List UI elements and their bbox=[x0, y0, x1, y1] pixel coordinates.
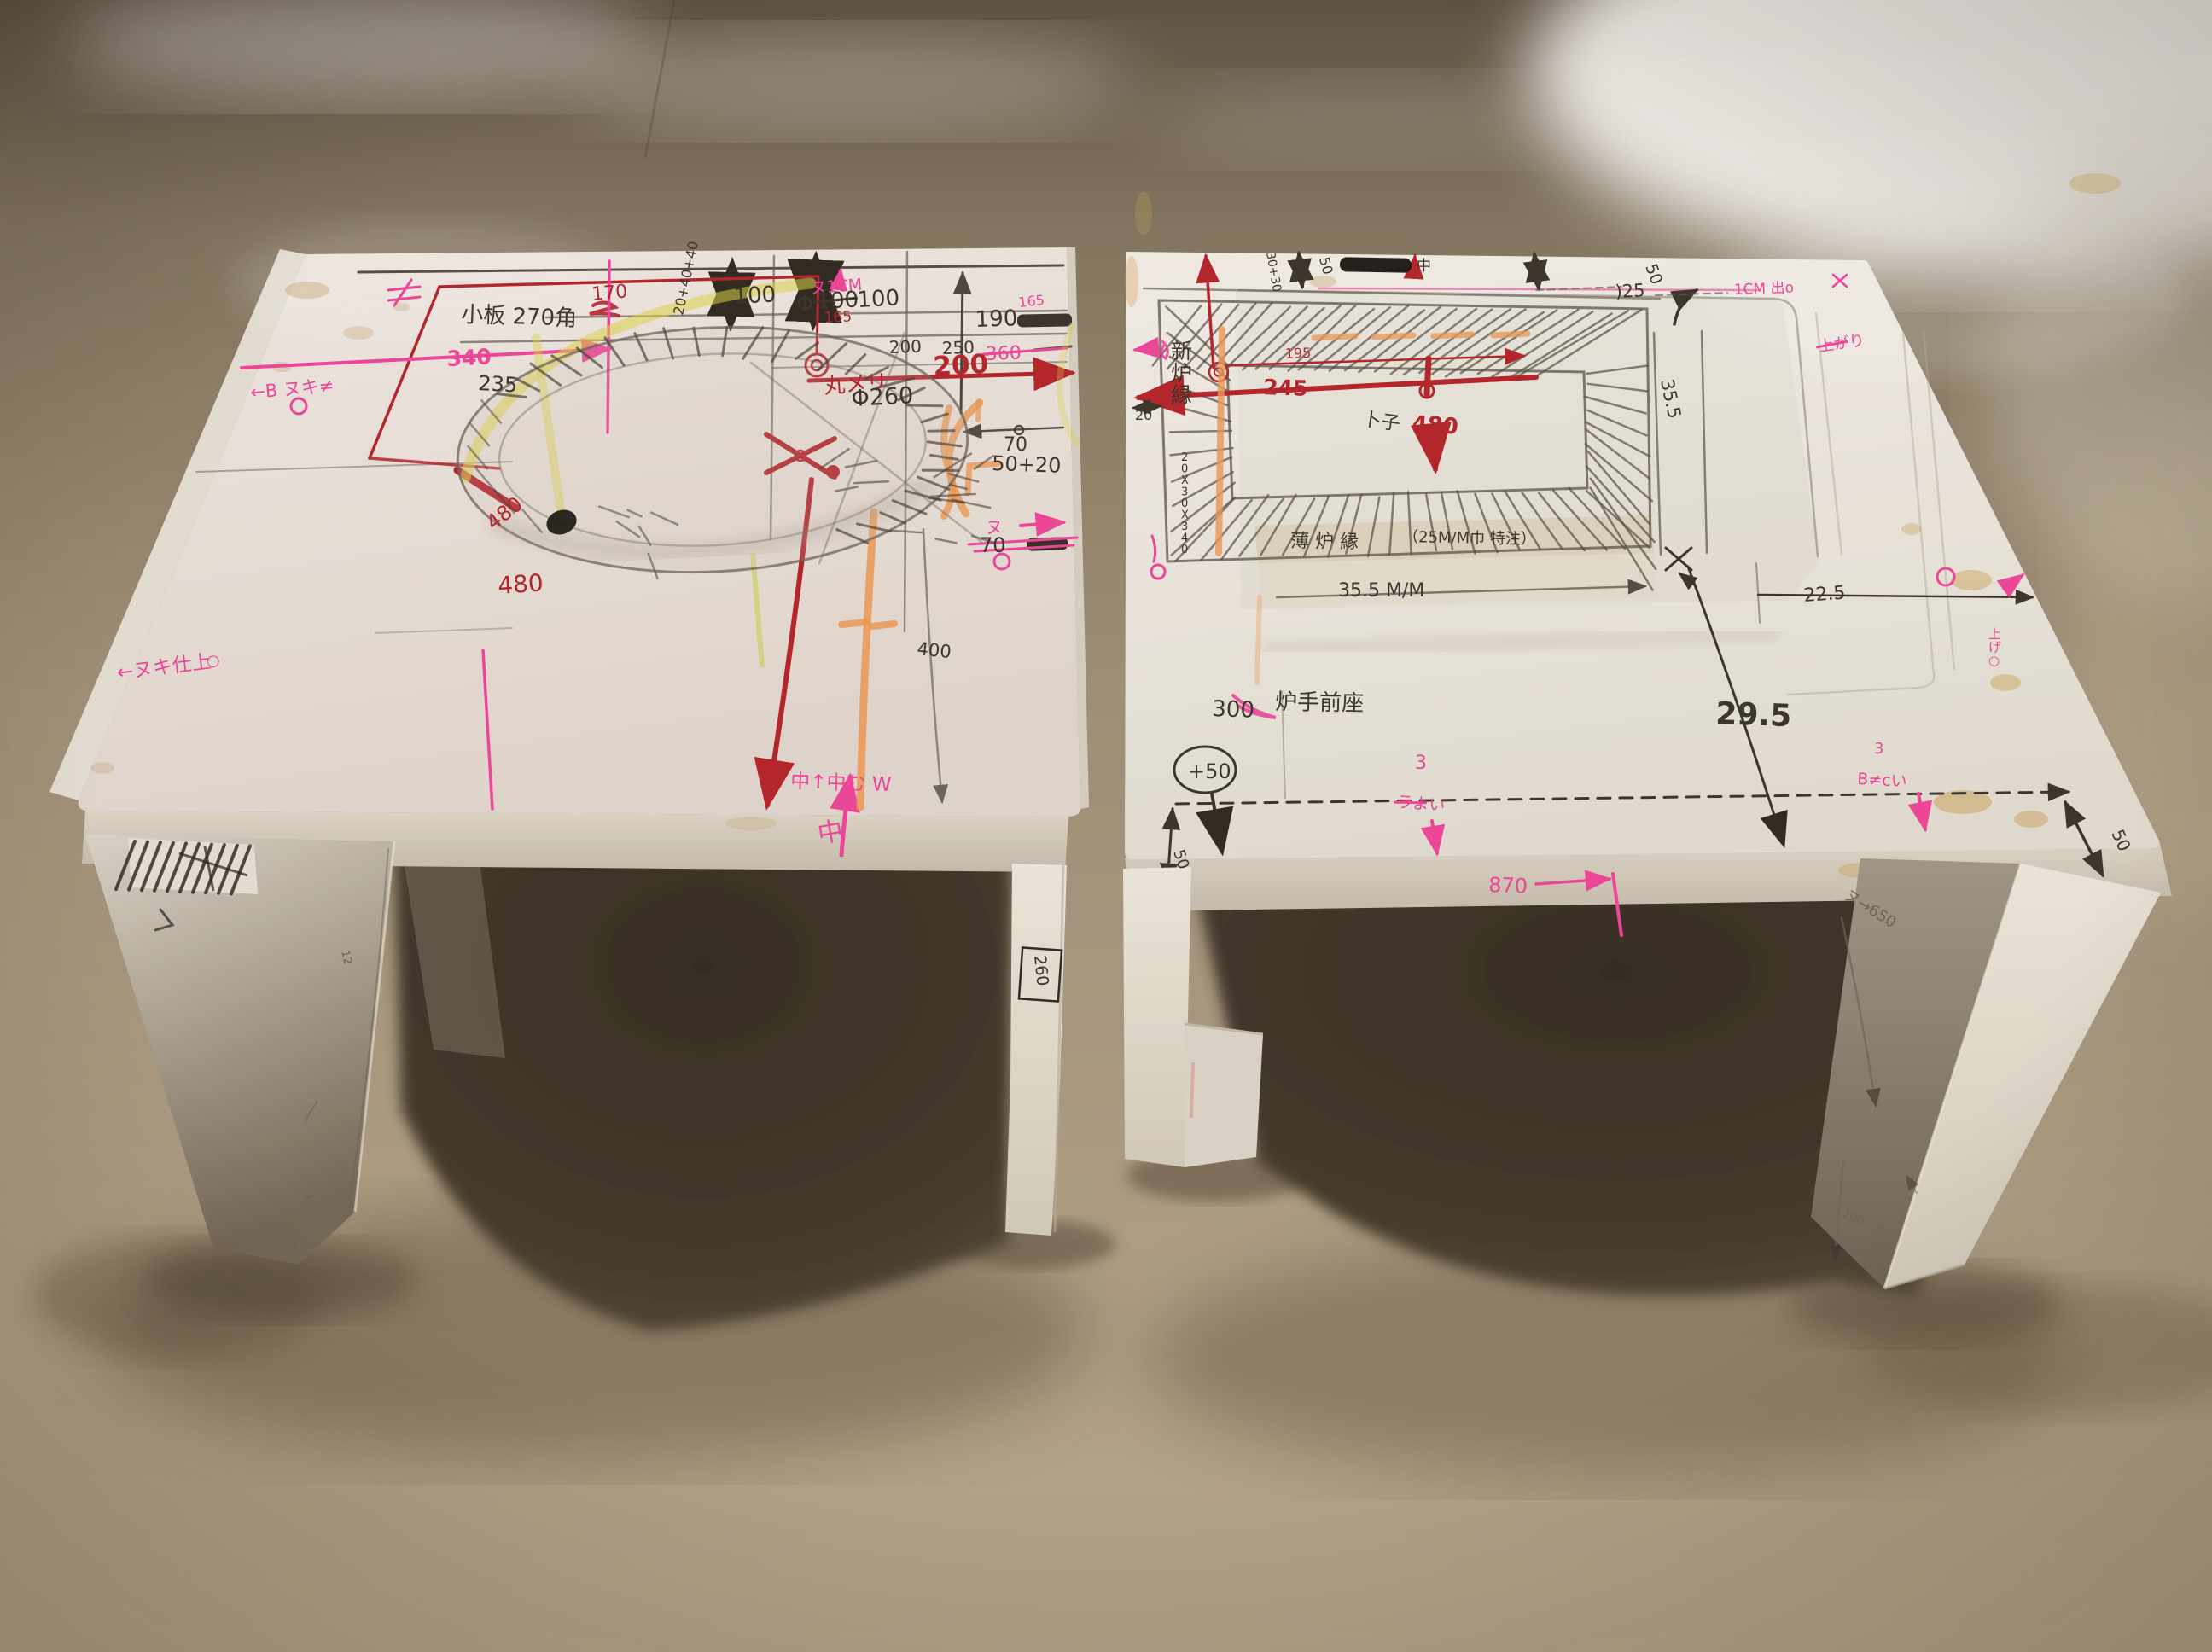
scene-canvas: 100Φ100100165ヌ1CM190165170小板 270角2002503… bbox=[0, 0, 2212, 1652]
lighting bbox=[0, 0, 2212, 1652]
photo-scene: 100Φ100100165ヌ1CM190165170小板 270角2002503… bbox=[0, 0, 2212, 1652]
